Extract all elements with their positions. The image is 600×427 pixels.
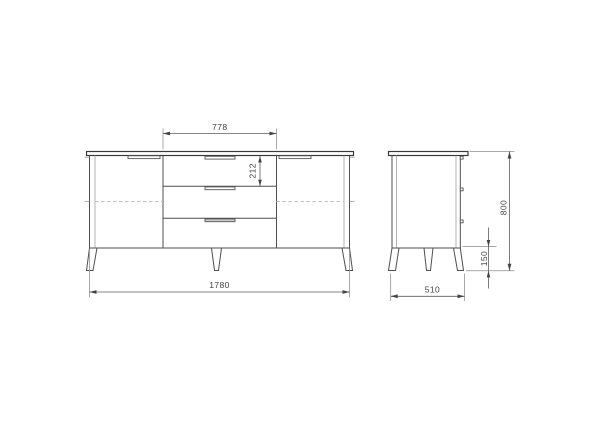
drawer2-handle	[205, 187, 235, 190]
dim-arrow	[343, 290, 350, 294]
side-cabinet	[389, 152, 469, 271]
dim-arrow	[508, 264, 512, 271]
dim-arrow	[163, 132, 170, 136]
dim-overall-height: 800	[466, 152, 515, 271]
dim-label-overall-height: 800	[499, 200, 509, 215]
side-middle-leg	[424, 248, 433, 271]
dim-label-depth: 510	[425, 284, 440, 294]
side-view: 510 800 150	[389, 152, 515, 302]
dim-arrow	[391, 294, 398, 298]
dim-arrow	[90, 290, 97, 294]
side-back-leg	[389, 248, 400, 271]
front-left-leg	[87, 248, 98, 271]
drawer3-grip-edge	[460, 220, 463, 223]
front-right-leg	[342, 248, 353, 271]
dim-arrow	[487, 271, 491, 278]
front-top-panel	[87, 152, 354, 156]
dim-drawer-section-width: 778	[163, 122, 277, 150]
drawer3-handle	[205, 219, 235, 222]
dim-arrow	[508, 152, 512, 159]
drawer2-grip-edge	[460, 188, 463, 191]
drawer1-handle	[205, 156, 235, 159]
dim-arrow	[458, 294, 465, 298]
side-front-leg	[454, 248, 464, 271]
side-carcass	[392, 156, 460, 249]
front-middle-leg	[212, 248, 222, 271]
dim-label-leg-height: 150	[479, 251, 489, 266]
dim-depth: 510	[391, 274, 465, 302]
technical-drawing: 778 212 1780	[0, 0, 600, 427]
dim-label-drawer-section-width: 778	[212, 122, 227, 132]
dim-label-top-drawer-height: 212	[248, 163, 258, 178]
drawer1-grip-edge	[460, 156, 463, 159]
dim-leg-height: 150	[463, 228, 497, 289]
front-cabinet	[85, 152, 355, 271]
drawing-sheet: 778 212 1780	[0, 0, 600, 427]
dim-arrow	[270, 132, 277, 136]
dim-label-overall-width: 1780	[209, 280, 230, 290]
dim-arrow	[487, 240, 491, 247]
right-door-handle	[279, 156, 311, 159]
left-door-handle	[128, 156, 160, 159]
side-top-panel	[389, 152, 469, 156]
front-view: 778 212 1780	[85, 122, 355, 298]
